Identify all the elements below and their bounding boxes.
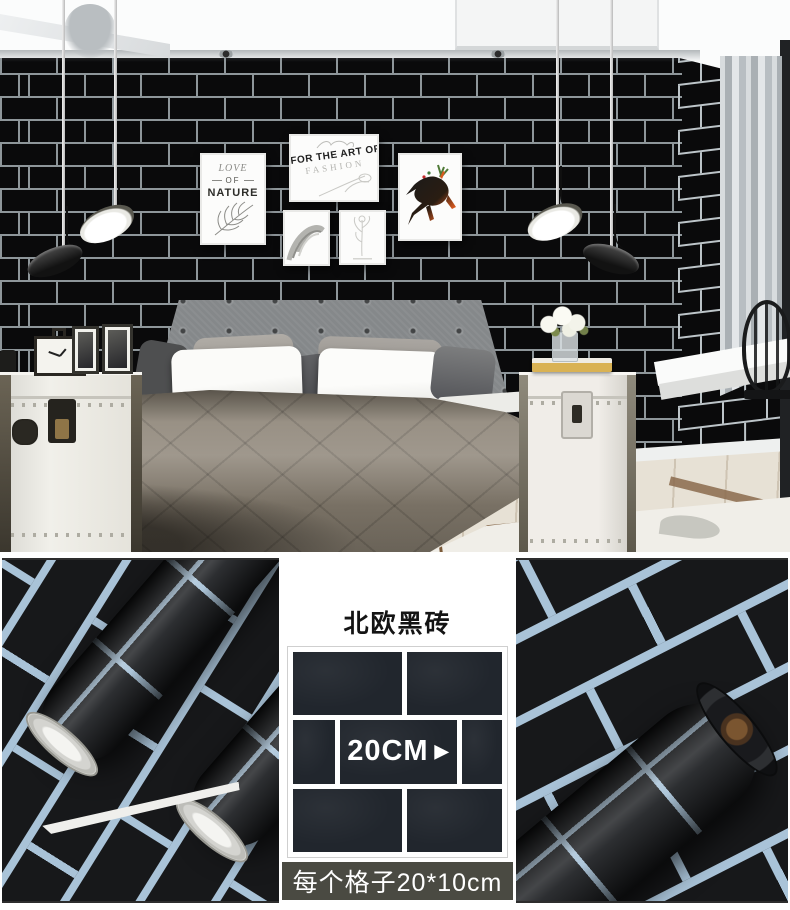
art-frame-deer	[398, 153, 462, 241]
lamp-cord	[114, 0, 117, 212]
photo-frame	[102, 324, 133, 374]
nature-word1: LOVE	[202, 163, 264, 174]
diagram-brick	[293, 652, 402, 715]
recessed-light-icon	[490, 50, 506, 58]
clock-minute-hand	[48, 351, 60, 357]
tile-width-label: 20CM	[347, 735, 428, 768]
recessed-light-icon	[218, 50, 234, 58]
brass-hasp	[55, 419, 69, 439]
swirl-illustration	[285, 212, 328, 264]
trunk-clasp	[561, 391, 593, 439]
product-title: 北欧黑砖	[279, 604, 516, 640]
diagram-brick	[407, 652, 502, 715]
nature-word2: OF	[202, 176, 264, 185]
nature-word3: NATURE	[202, 187, 264, 199]
brick-row	[0, 75, 682, 98]
white-flowers	[538, 304, 592, 338]
corner-metal	[627, 375, 636, 552]
corner-metal	[519, 375, 528, 552]
lamp-cord	[556, 0, 559, 210]
ceiling-lamp-shadow	[64, 4, 116, 58]
product-panels: 北欧黑砖 20CM ▶	[0, 552, 790, 910]
clock-handle	[52, 328, 66, 337]
corner-metal	[131, 375, 142, 552]
tile-size-caption: 每个格子20*10cm	[282, 862, 513, 900]
keyhole	[572, 405, 582, 423]
deer-illustration	[400, 155, 460, 239]
flower-sketch	[315, 172, 375, 198]
diagram-brick	[293, 789, 402, 852]
wire-lantern-base	[744, 390, 790, 399]
trunk-nightstand-left	[0, 372, 142, 552]
roll-photo-right	[516, 558, 788, 903]
corner-metal	[0, 375, 11, 552]
lamp-cable	[614, 204, 630, 250]
trunk-clasp	[48, 399, 76, 443]
brick-row	[0, 98, 682, 121]
floral-sketch	[341, 212, 384, 263]
diagram-brick-labeled: 20CM ▶	[340, 720, 457, 783]
roll-photo-left	[2, 558, 279, 903]
art-frame-sketch	[339, 210, 386, 265]
diagram-brick	[462, 720, 502, 783]
trunk-emblem	[12, 419, 38, 445]
brick-grid: 20CM ▶	[293, 652, 502, 852]
stud-row	[519, 539, 636, 543]
product-image: LOVE OF NATURE FOR THE ART OF FASHION	[0, 0, 790, 910]
photo	[78, 332, 93, 368]
clock-hour-hand	[59, 348, 66, 356]
trunk-lid	[0, 375, 142, 399]
arrow-right-icon: ▶	[435, 741, 450, 762]
diagram-brick	[293, 720, 335, 783]
spec-card: 北欧黑砖 20CM ▶	[279, 558, 516, 903]
art-frame-fashion: FOR THE ART OF FASHION	[289, 134, 379, 202]
wire-lantern	[742, 300, 790, 394]
lamp-cord	[62, 0, 65, 252]
bottom-margin	[0, 903, 790, 910]
art-frame-swirl	[283, 210, 330, 266]
art-frame-nature: LOVE OF NATURE	[200, 153, 266, 245]
stud-row	[0, 533, 142, 537]
bedroom-scene-photo: LOVE OF NATURE FOR THE ART OF FASHION	[0, 0, 790, 552]
trunk-nightstand-right	[519, 372, 636, 552]
photo	[108, 330, 127, 368]
photo-frame	[72, 326, 99, 374]
lamp-cord	[610, 0, 613, 250]
diagram-brick	[407, 789, 502, 852]
leaf-illustration	[207, 199, 259, 239]
brick-size-diagram: 20CM ▶	[287, 646, 508, 858]
